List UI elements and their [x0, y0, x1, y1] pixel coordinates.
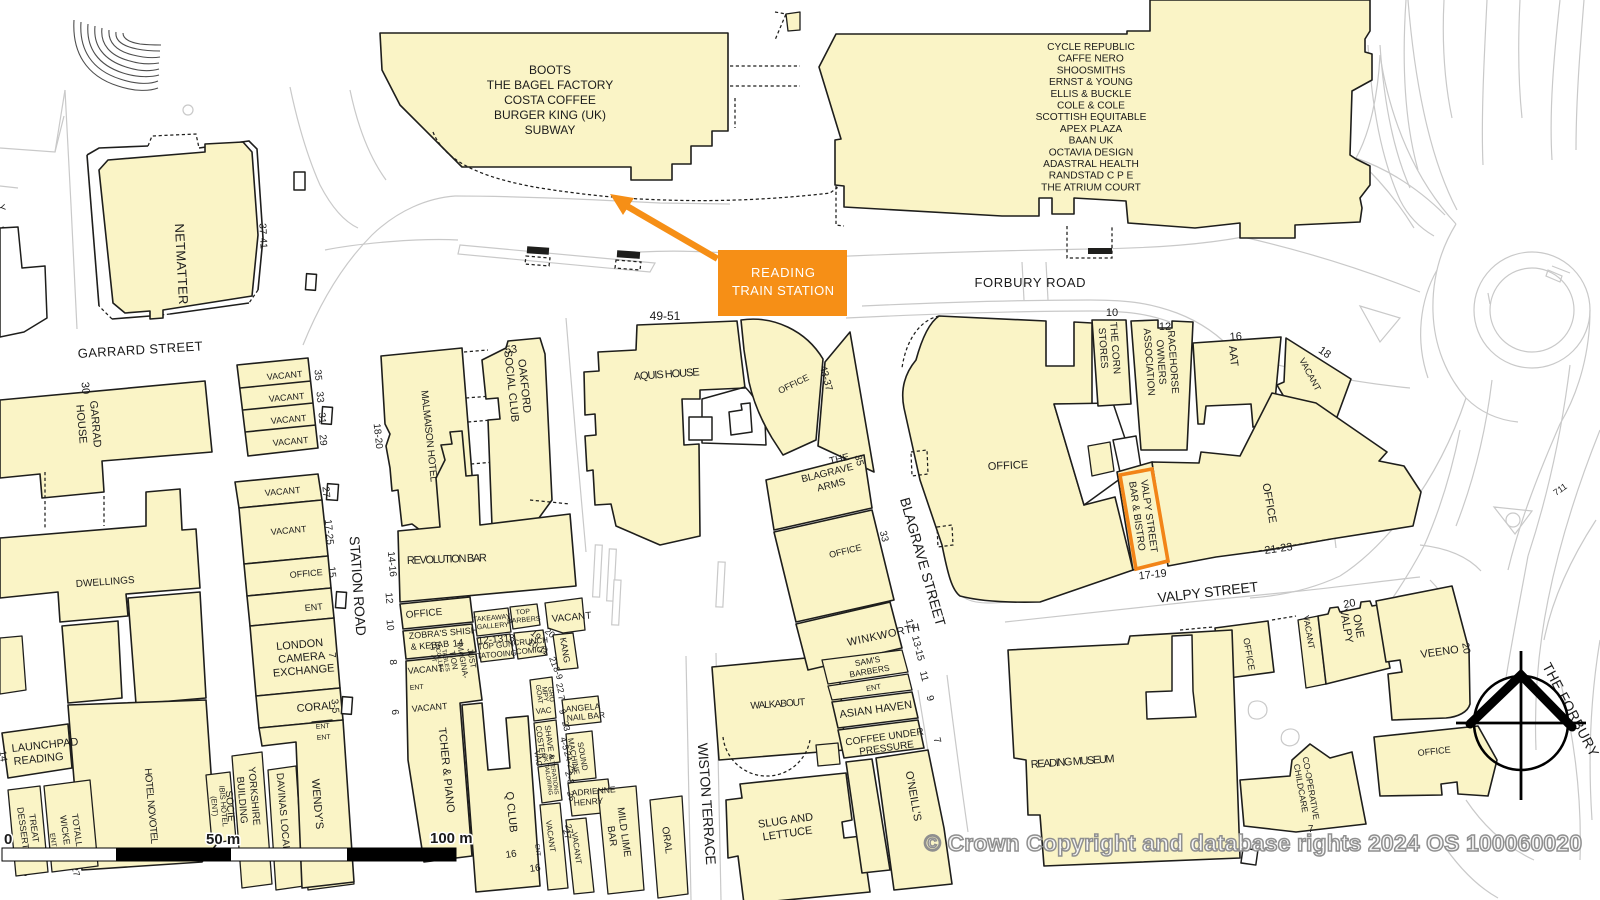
svg-text:ERNST & YOUNG: ERNST & YOUNG: [1049, 77, 1133, 88]
svg-text:ENT: ENT: [317, 734, 332, 742]
svg-text:16: 16: [505, 848, 518, 861]
svg-text:COSTA COFFEE: COSTA COFFEE: [504, 93, 596, 107]
svg-text:OCTAVIA DESIGN: OCTAVIA DESIGN: [1049, 147, 1134, 158]
svg-text:31: 31: [316, 412, 328, 424]
svg-text:SCOTTISH EQUITABLE: SCOTTISH EQUITABLE: [1036, 112, 1147, 123]
svg-text:27: 27: [320, 486, 332, 498]
svg-text:50 m: 50 m: [206, 831, 240, 848]
svg-text:CYCLE REPUBLIC: CYCLE REPUBLIC: [1047, 42, 1135, 53]
svg-text:16: 16: [529, 862, 542, 875]
svg-text:100 m: 100 m: [430, 830, 473, 847]
svg-text:BAAN UK: BAAN UK: [1069, 136, 1114, 147]
svg-text:RANDSTAD C P E: RANDSTAD C P E: [1049, 171, 1134, 182]
svg-text:ENT: ENT: [410, 684, 425, 692]
svg-text:35: 35: [312, 369, 324, 381]
svg-text:SHOOSMITHS: SHOOSMITHS: [1057, 65, 1126, 76]
svg-text:ENT: ENT: [316, 723, 331, 731]
svg-text:TOP: TOP: [515, 608, 530, 616]
svg-text:CAFFE NERO: CAFFE NERO: [1058, 54, 1124, 65]
svg-text:VAC: VAC: [535, 706, 552, 716]
svg-text:BURGER KING (UK): BURGER KING (UK): [494, 108, 606, 122]
svg-text:SUBWAY: SUBWAY: [525, 123, 576, 137]
svg-text:12: 12: [383, 592, 395, 604]
svg-text:ADASTRAL HEALTH: ADASTRAL HEALTH: [1043, 159, 1139, 170]
svg-text:33: 33: [314, 391, 326, 403]
svg-text:49-51: 49-51: [650, 309, 681, 323]
svg-text:AAT: AAT: [1226, 345, 1240, 367]
svg-text:14-16: 14-16: [385, 551, 398, 578]
svg-text:APEX PLAZA: APEX PLAZA: [1060, 124, 1122, 135]
svg-text:ELLIS & BUCKLE: ELLIS & BUCKLE: [1051, 89, 1132, 100]
svg-text:17-25: 17-25: [322, 519, 335, 546]
svg-text:READING: READING: [751, 265, 815, 280]
svg-text:TRAIN STATION: TRAIN STATION: [732, 283, 834, 298]
svg-text:THE BAGEL FACTORY: THE BAGEL FACTORY: [487, 78, 613, 92]
svg-text:10: 10: [1106, 307, 1118, 319]
svg-text:ENT: ENT: [304, 601, 323, 613]
svg-text:© Crown Copyright and database: © Crown Copyright and database rights 20…: [924, 830, 1582, 856]
svg-text:29: 29: [317, 434, 329, 446]
svg-text:30: 30: [78, 381, 91, 394]
svg-text:14: 14: [0, 750, 9, 763]
svg-text:37-41: 37-41: [256, 223, 268, 250]
svg-text:16: 16: [1229, 331, 1242, 344]
svg-text:10: 10: [384, 619, 396, 631]
svg-text:COLE & COLE: COLE & COLE: [1057, 101, 1125, 112]
svg-text:FORBURY ROAD: FORBURY ROAD: [975, 275, 1086, 290]
svg-text:0: 0: [4, 831, 12, 848]
svg-text:3-5: 3-5: [328, 698, 340, 714]
svg-text:(ENT): (ENT): [209, 796, 220, 817]
svg-text:OFFICE: OFFICE: [988, 459, 1029, 473]
svg-text:15: 15: [326, 566, 338, 578]
svg-text:THE ATRIUM COURT: THE ATRIUM COURT: [1041, 182, 1141, 193]
svg-text:BOOTS: BOOTS: [529, 63, 571, 77]
